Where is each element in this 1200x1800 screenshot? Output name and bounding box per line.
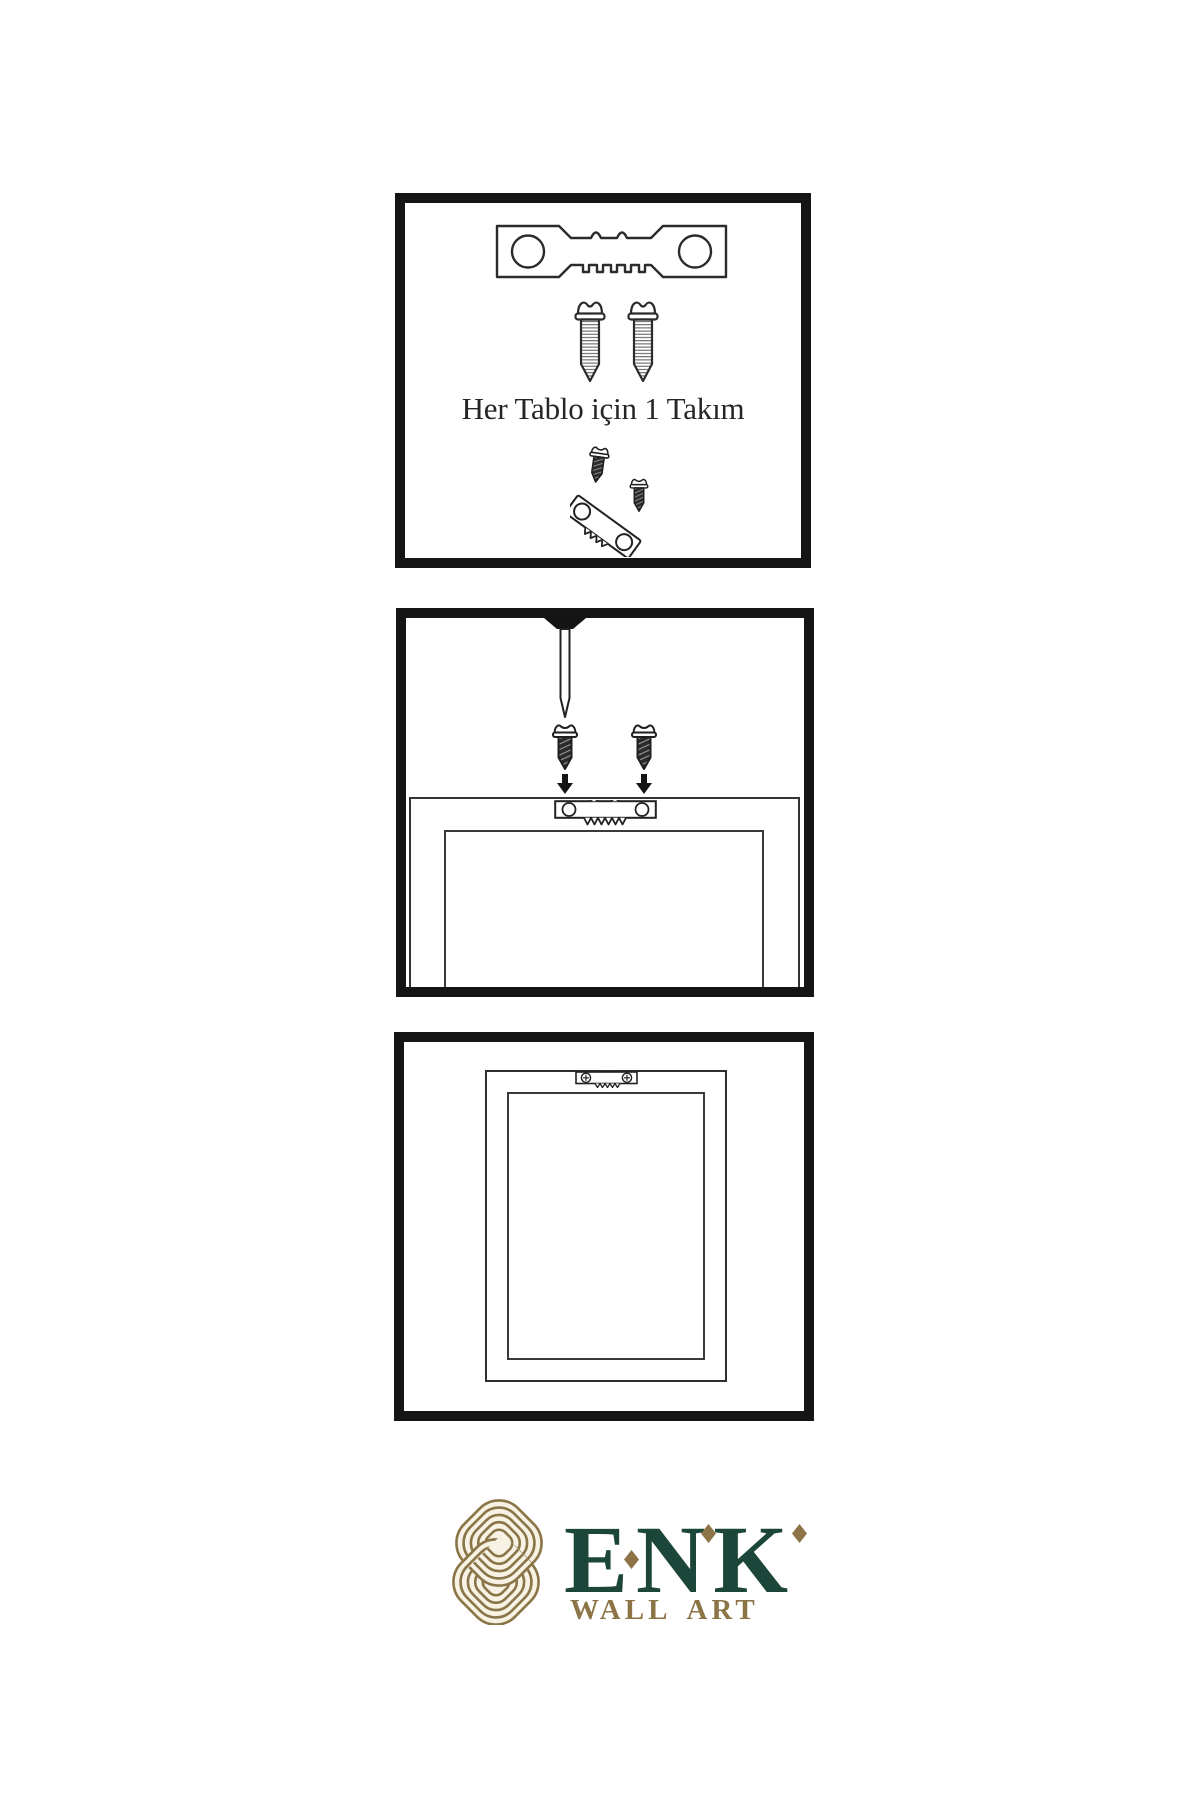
brand-logo: ENK WALL ART <box>380 1470 840 1690</box>
kit-caption: Her Tablo için 1 Takım <box>405 389 801 429</box>
brand-subtitle: WALL ART <box>570 1594 759 1627</box>
knot-logo-icon <box>435 1498 562 1625</box>
arrow-down-icon <box>636 774 652 794</box>
sawtooth-hanger-small-icon <box>554 800 657 829</box>
step-panel-mounting <box>396 608 814 997</box>
screw-icon <box>626 298 660 384</box>
screw-icon <box>573 298 607 384</box>
nail-icon <box>543 618 587 720</box>
screw-and-hanger-assembly-icon <box>570 443 672 557</box>
instruction-sheet: Her Tablo için 1 Takım <box>0 0 1200 1800</box>
sawtooth-hanger-icon <box>495 223 728 280</box>
screw-icon <box>629 722 659 770</box>
step-panel-kit: Her Tablo için 1 Takım <box>395 193 811 568</box>
step-panel-hung <box>394 1032 814 1421</box>
arrow-down-icon <box>557 774 573 794</box>
frame-inner-outline <box>507 1092 705 1360</box>
screw-icon <box>550 722 580 770</box>
frame-back-inner-outline <box>444 830 764 997</box>
sawtooth-hanger-mounted-icon <box>575 1071 638 1090</box>
